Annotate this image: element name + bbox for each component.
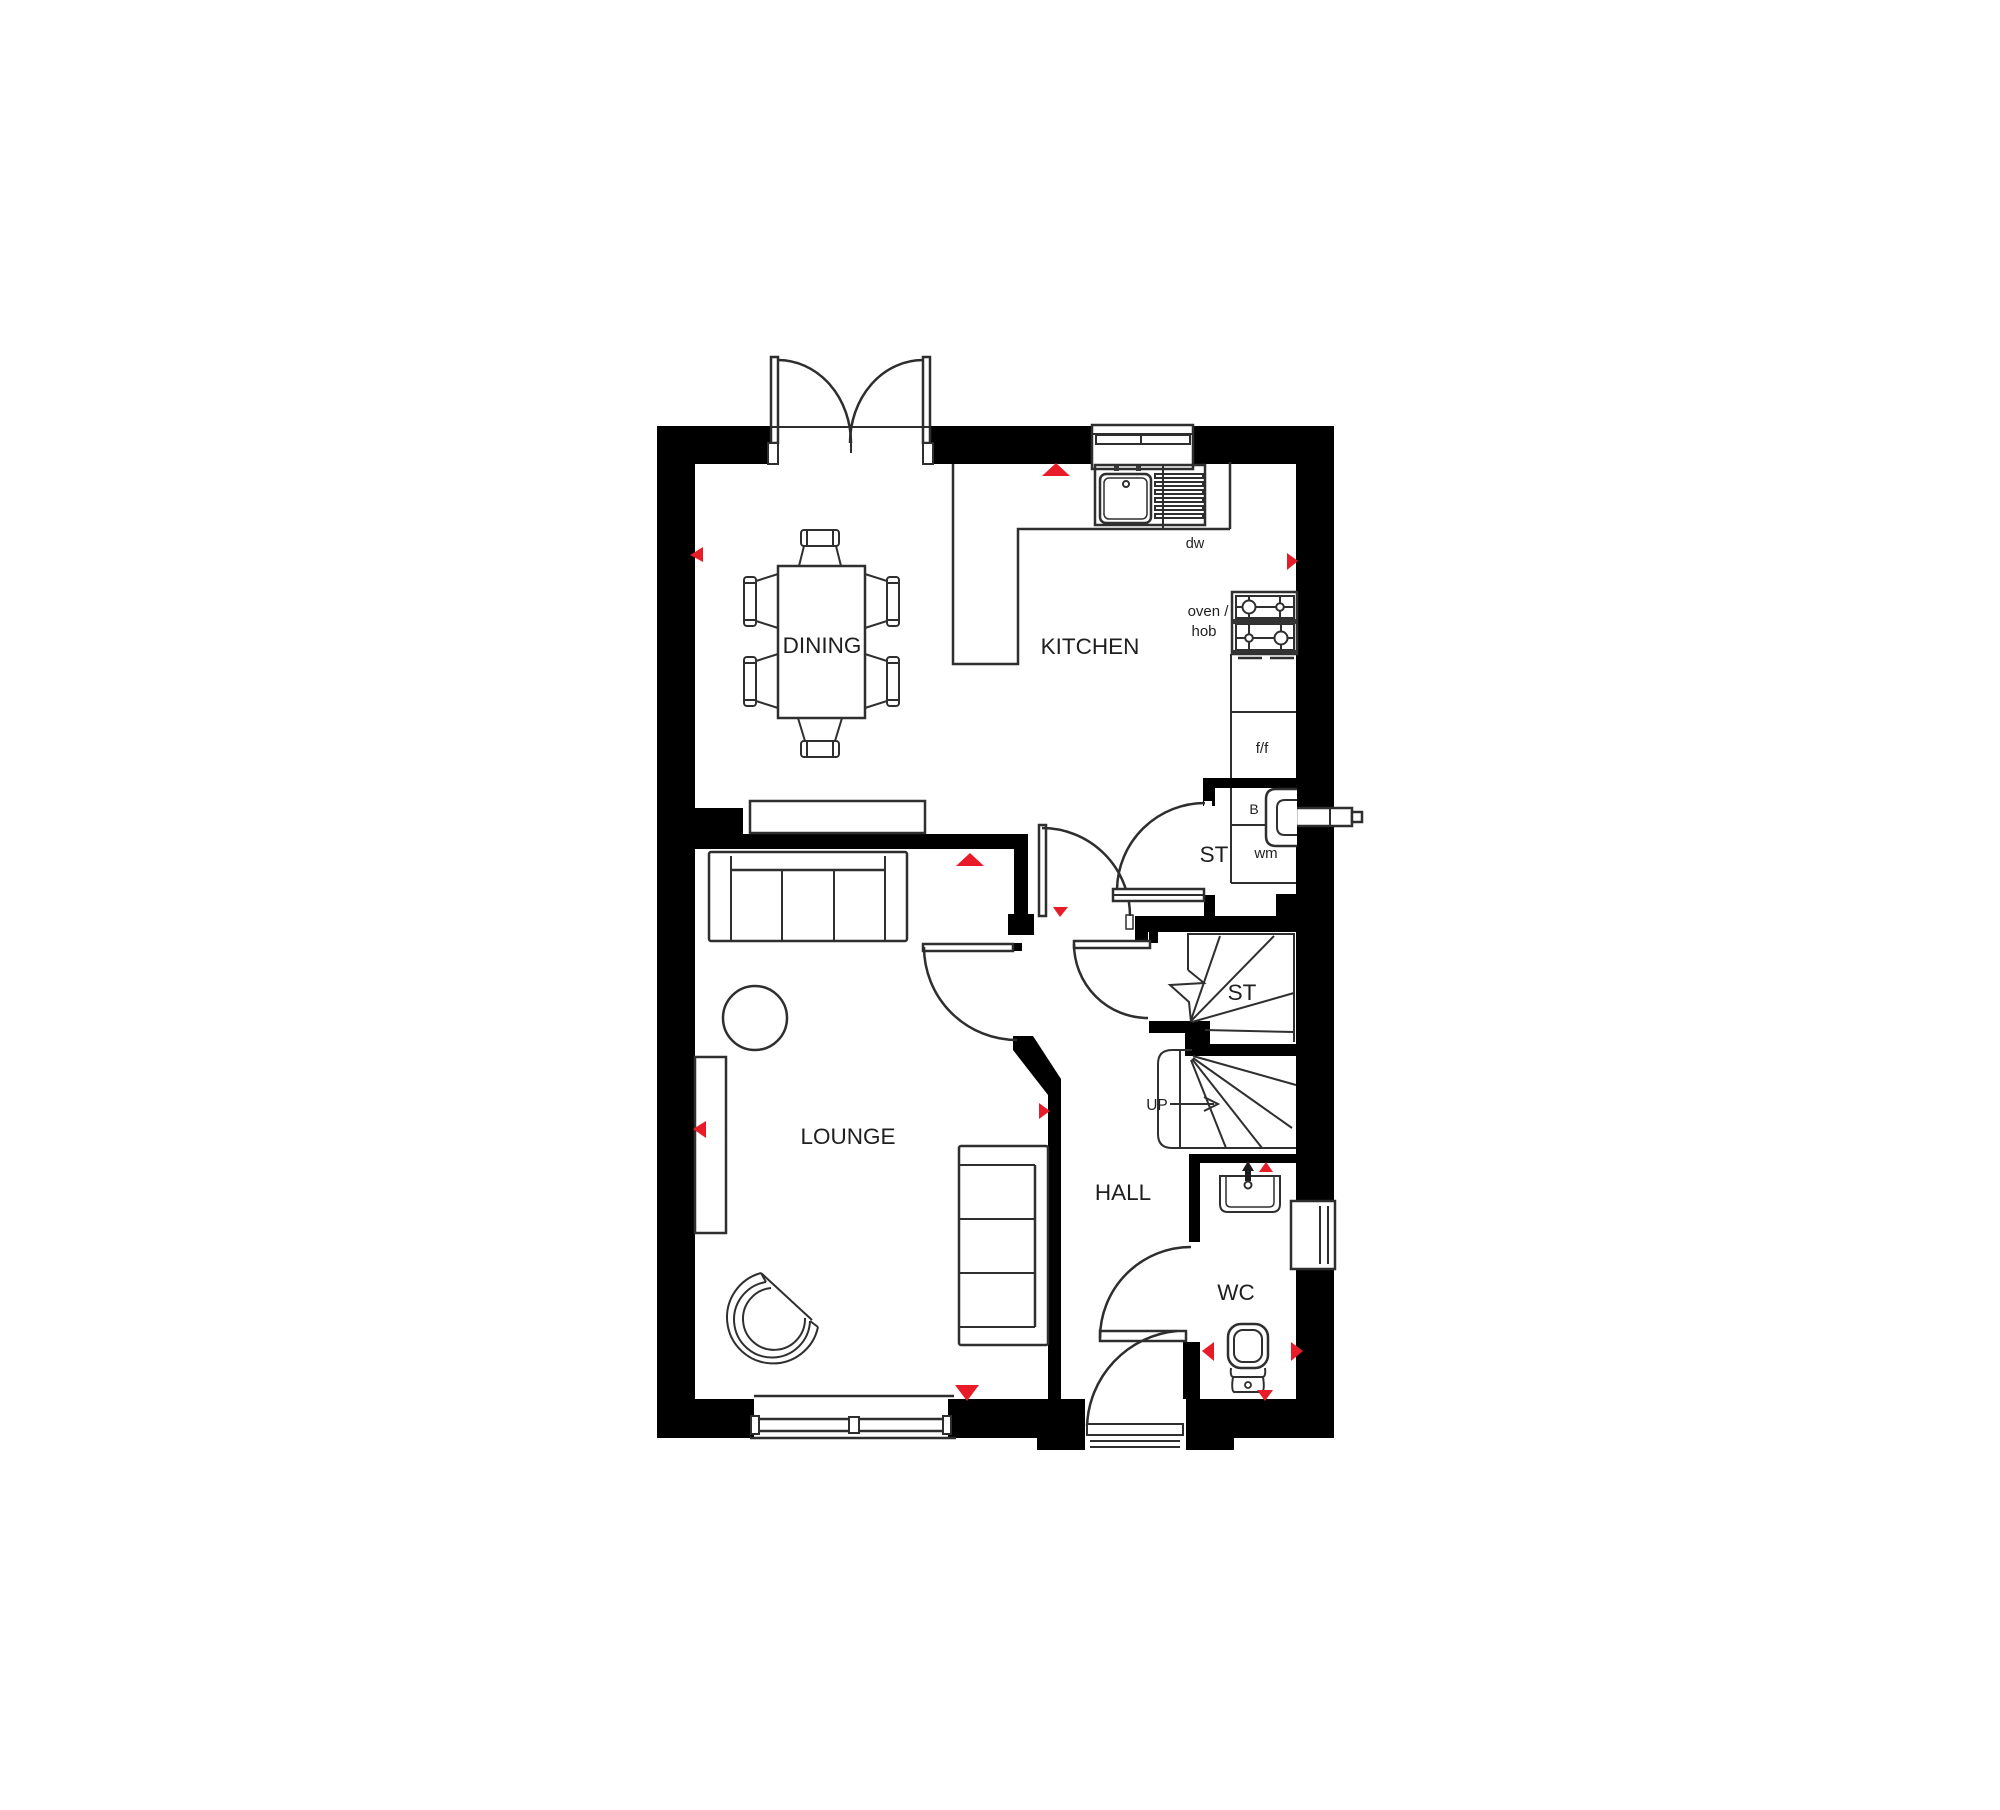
svg-text:KITCHEN: KITCHEN: [1041, 634, 1140, 659]
svg-text:WC: WC: [1217, 1280, 1255, 1305]
svg-text:LOUNGE: LOUNGE: [800, 1124, 895, 1149]
svg-text:DINING: DINING: [783, 633, 862, 658]
svg-text:B: B: [1249, 801, 1258, 817]
svg-text:UP: UP: [1146, 1097, 1168, 1114]
svg-text:oven /: oven /: [1188, 603, 1230, 620]
svg-text:wm: wm: [1253, 845, 1277, 862]
svg-text:f/f: f/f: [1256, 740, 1269, 757]
svg-text:dw: dw: [1186, 536, 1205, 552]
svg-text:ST: ST: [1200, 842, 1229, 867]
svg-text:ST: ST: [1228, 980, 1257, 1005]
svg-text:hob: hob: [1191, 623, 1216, 640]
svg-text:HALL: HALL: [1095, 1180, 1151, 1205]
